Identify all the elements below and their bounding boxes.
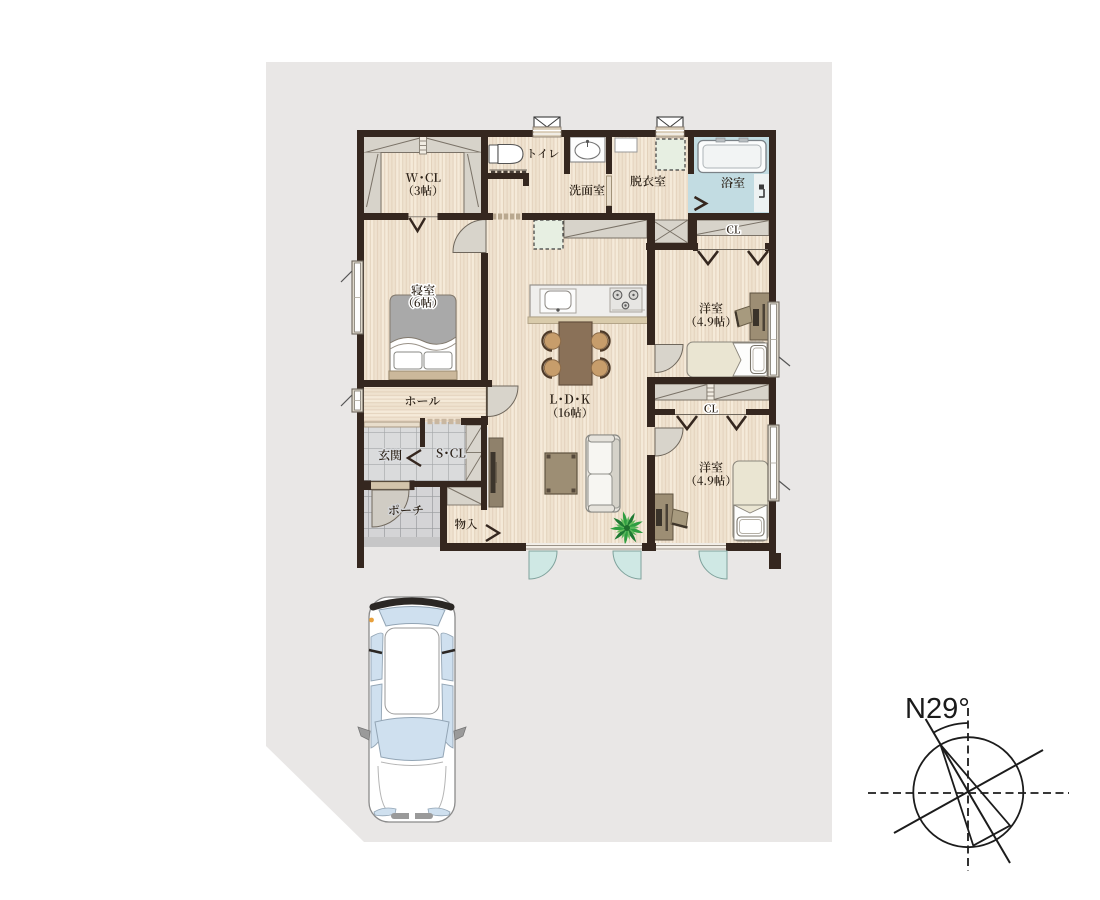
svg-text:N29°: N29° xyxy=(905,693,970,725)
